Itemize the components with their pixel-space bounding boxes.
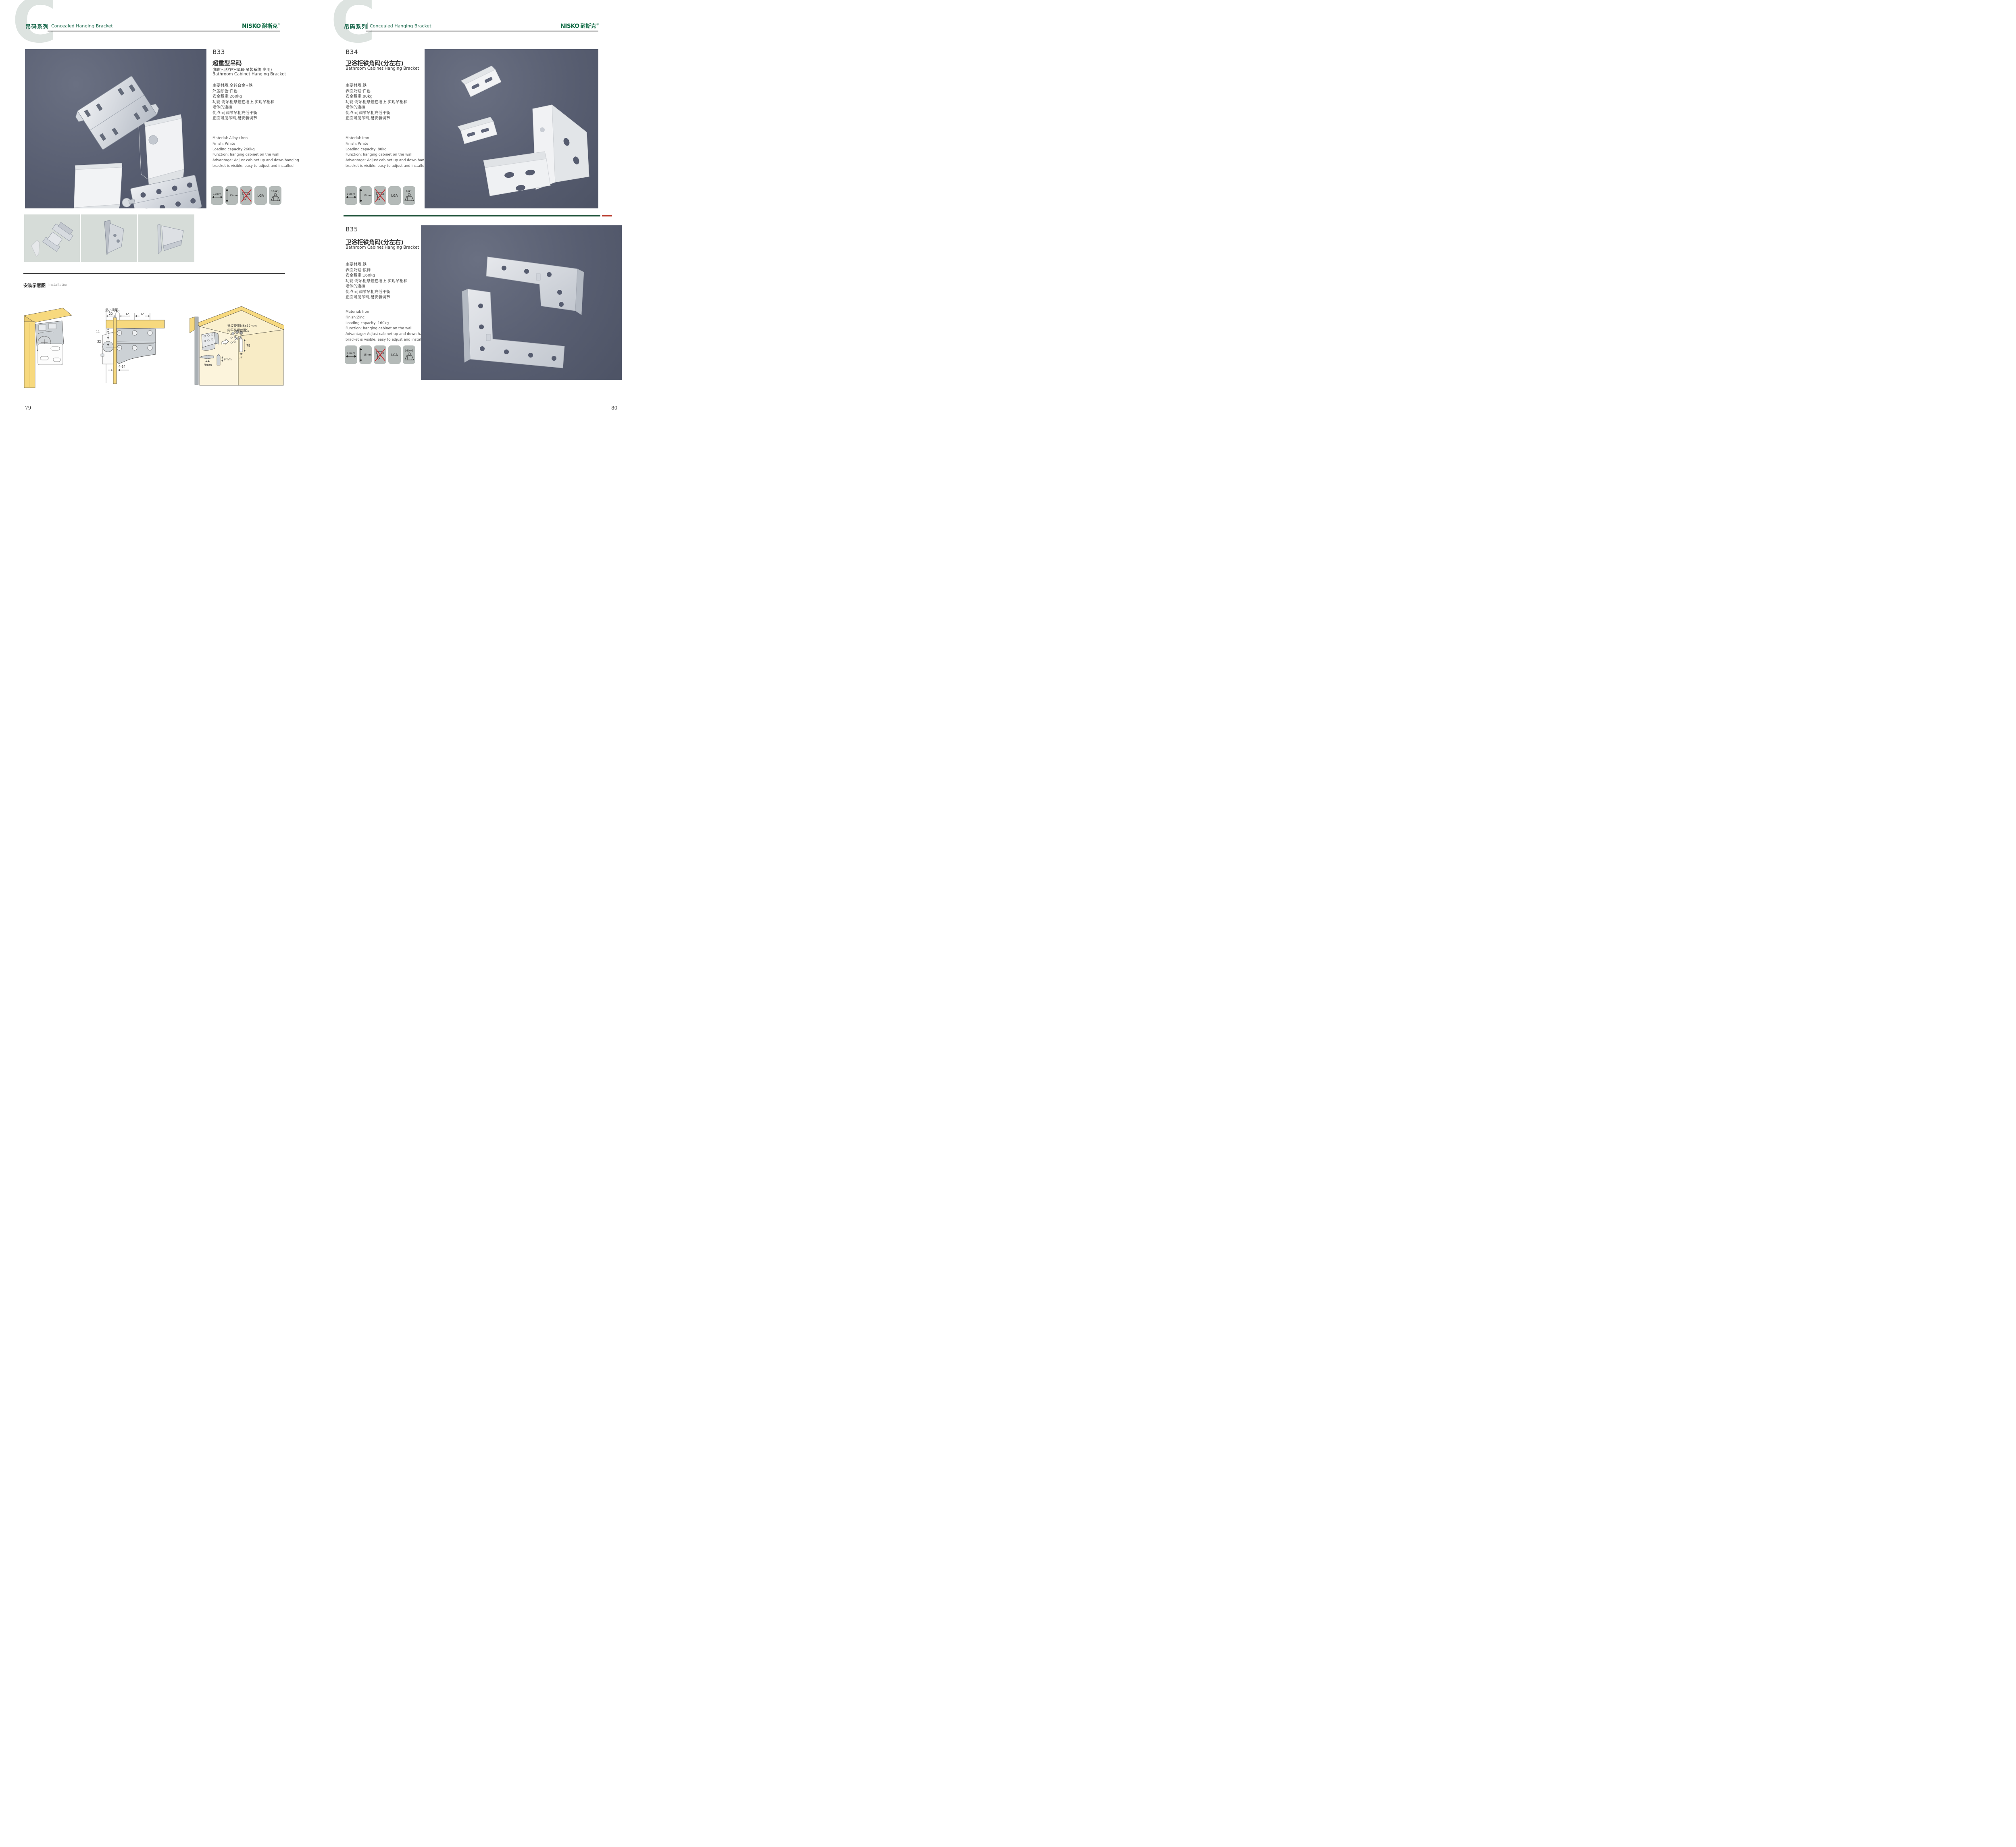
width-dimension-label: 10mm xyxy=(347,352,355,355)
height-dimension-label: 15mm xyxy=(363,354,371,356)
b34-feature-icons: 10mm 15mm LGA 80Kg xyxy=(345,186,415,205)
series-title-en: Concealed Hanging Bracket xyxy=(51,23,113,29)
load-capacity-icon: 80Kg xyxy=(403,186,415,205)
header-underline xyxy=(48,31,280,31)
right-page-number: 80 xyxy=(611,405,617,411)
b33-product-photo xyxy=(25,49,206,208)
lga-cert-icon: LGA xyxy=(388,186,401,205)
brand-logo: NISKO耐斯克® xyxy=(242,22,281,29)
b33-title-en: Bathroom Cabinet Hanging Bracket xyxy=(212,72,286,77)
white-z-clip-2 xyxy=(458,116,497,144)
b33-code: B33 xyxy=(212,48,225,56)
bit-height-label: 9mm xyxy=(224,358,231,361)
section-separator-green xyxy=(344,215,600,216)
registered-mark: ® xyxy=(278,23,281,26)
b33-thumbnail-3 xyxy=(138,214,194,262)
brand-logo-cn: 耐斯克 xyxy=(262,23,278,29)
b35-product-photo xyxy=(421,225,622,380)
dim-32b: 32 xyxy=(140,312,144,316)
height-dimension-icon: 13mm xyxy=(225,186,238,205)
series-title-cn: 吊码系列 xyxy=(25,22,49,30)
zinc-l-plate-right xyxy=(486,257,584,315)
height-dimension-label: 13mm xyxy=(229,194,237,197)
b35-title-en: Bathroom Cabinet Hanging Bracket xyxy=(346,245,419,250)
no-drill-icon xyxy=(240,186,252,205)
b34-specs-cn: 主要材质:铁 表面处理:白色 安全载重:80kg 功能:将吊柜悬挂在墙上,实现吊… xyxy=(346,83,407,121)
lga-cert-label: LGA xyxy=(391,354,398,356)
b33-specs-en: Material: Alloy+iron Finish: White Loadi… xyxy=(212,136,299,169)
horizontal-arrow-icon xyxy=(212,196,223,199)
registered-mark-right: ® xyxy=(596,23,599,26)
vertical-arrow-icon xyxy=(359,348,362,362)
lga-cert-icon: LGA xyxy=(388,345,401,364)
width-dimension-icon: 12mm xyxy=(211,186,223,205)
b33-subtitle-cn: (橱柜·卫浴柜·家具·吊装系统 专用) xyxy=(212,67,272,72)
width-dimension-label: 10mm xyxy=(347,193,355,196)
bit-width-label: 9mm xyxy=(204,363,212,367)
b35-product-illustration xyxy=(421,225,622,380)
white-l-bracket-bottom xyxy=(483,152,550,196)
b35-code: B35 xyxy=(346,226,358,233)
installation-diagram-cabinet-drawing: 建议使用M6x12mm 的平头螺丝固定 xyxy=(190,306,284,387)
height-dimension-icon: 15mm xyxy=(359,345,372,364)
dim-37: 37 xyxy=(239,356,243,359)
dim-11: 11 xyxy=(96,330,100,334)
header-divider xyxy=(49,23,49,29)
installation-diagram-corner-drawing xyxy=(23,306,76,389)
width-dimension-label: 12mm xyxy=(213,193,221,196)
b35-specs-en: Material: Iron Finish:Zinc Loading capac… xyxy=(346,310,432,343)
b34-product-photo xyxy=(425,49,598,208)
header-underline-right xyxy=(366,31,598,31)
white-cover-bracket xyxy=(69,158,125,208)
load-capacity-label: 80Kg xyxy=(406,190,412,193)
left-page-number: 79 xyxy=(25,405,31,411)
height-dimension-icon: 15mm xyxy=(359,186,372,205)
b33-thumbnail-2 xyxy=(81,214,137,262)
no-drill-icon xyxy=(374,186,386,205)
drill-crossed-out-icon xyxy=(375,189,385,202)
brand-logo-en-right: NISKO xyxy=(560,23,579,29)
installation-diagram-section-drawing: 最小间距 20 10 32 32 xyxy=(92,306,167,387)
b35-feature-icons: 10mm 15mm LGA 160KG xyxy=(345,345,415,364)
b33-feature-icons: 12mm 13mm LGA 260Kg xyxy=(211,186,281,205)
load-weight-icon xyxy=(404,352,414,360)
b33-thumbnail-1-parts xyxy=(24,214,80,262)
mount-slot xyxy=(240,339,243,352)
b34-code: B34 xyxy=(346,48,358,56)
b33-thumbnail-2-parts xyxy=(81,214,137,262)
width-dimension-icon: 10mm xyxy=(345,186,357,205)
dim-4-14: 4-14 xyxy=(119,365,125,368)
catalog-spread: C 吊码系列 Concealed Hanging Bracket NISKO耐斯… xyxy=(0,0,623,425)
b33-title-cn: 超重型吊码 xyxy=(212,59,242,67)
load-weight-icon xyxy=(270,193,281,201)
series-title-en-right: Concealed Hanging Bracket xyxy=(370,23,431,29)
load-weight-icon xyxy=(404,193,414,201)
b33-product-illustration xyxy=(25,49,206,208)
load-capacity-icon: 160KG xyxy=(403,345,415,364)
load-capacity-label: 160KG xyxy=(405,349,413,352)
b34-title-en: Bathroom Cabinet Hanging Bracket xyxy=(346,66,419,71)
drill-crossed-out-icon xyxy=(375,348,385,362)
screw-note-line1: 建议使用M6x12mm xyxy=(227,324,257,328)
drill-crossed-out-icon xyxy=(241,189,252,202)
installation-title-cn: 安装示意图 xyxy=(23,282,46,289)
b33-thumbnail-1 xyxy=(24,214,80,262)
load-capacity-icon: 260Kg xyxy=(269,186,281,205)
horizontal-arrow-icon xyxy=(346,196,356,199)
lga-cert-icon: LGA xyxy=(254,186,267,205)
installation-diagram-section: 最小间距 20 10 32 32 xyxy=(92,306,167,387)
header-divider-right xyxy=(367,23,368,29)
lga-cert-label: LGA xyxy=(391,194,398,197)
width-dimension-icon: 10mm xyxy=(345,345,357,364)
dim-10: 10 xyxy=(116,310,120,313)
dim-20: 20 xyxy=(109,312,113,316)
installation-title-en: Installation xyxy=(48,283,69,287)
installation-diagram-cabinet: 建议使用M6x12mm 的平头螺丝固定 xyxy=(190,306,284,387)
installation-diagram-corner xyxy=(23,306,76,389)
brand-logo-en: NISKO xyxy=(242,23,261,29)
b35-specs-cn: 主要材质:铁 表面处理:镀锌 安全载重:160kg 功能:将吊柜悬挂在墙上,实现… xyxy=(346,262,407,300)
b34-specs-en: Material: Iron Finish: White Loading cap… xyxy=(346,136,432,169)
brand-logo-right: NISKO耐斯克® xyxy=(560,22,599,29)
no-drill-icon xyxy=(374,345,386,364)
brand-logo-cn-right: 耐斯克 xyxy=(581,23,596,29)
b33-thumbnail-3-parts xyxy=(138,214,194,262)
vertical-arrow-icon xyxy=(225,189,229,202)
b33-specs-cn: 主要材质:全锌合金+铁 外盖颜色:白色 安全载重:260kg 功能:将吊柜悬挂在… xyxy=(212,83,274,121)
dim-32-left: 32 xyxy=(97,340,101,343)
dim-32a: 32 xyxy=(125,312,129,316)
white-z-clip-1 xyxy=(461,65,501,98)
height-dimension-label: 15mm xyxy=(363,194,371,197)
series-title-cn-right: 吊码系列 xyxy=(344,22,367,30)
horizontal-arrow-icon xyxy=(346,355,356,358)
section-separator-red xyxy=(602,215,612,216)
dim-78: 78 xyxy=(246,344,250,347)
lga-cert-label: LGA xyxy=(257,194,264,197)
load-capacity-label: 260Kg xyxy=(271,190,279,193)
vertical-arrow-icon xyxy=(359,189,362,202)
b34-product-illustration xyxy=(425,49,598,208)
installation-divider xyxy=(23,273,285,274)
